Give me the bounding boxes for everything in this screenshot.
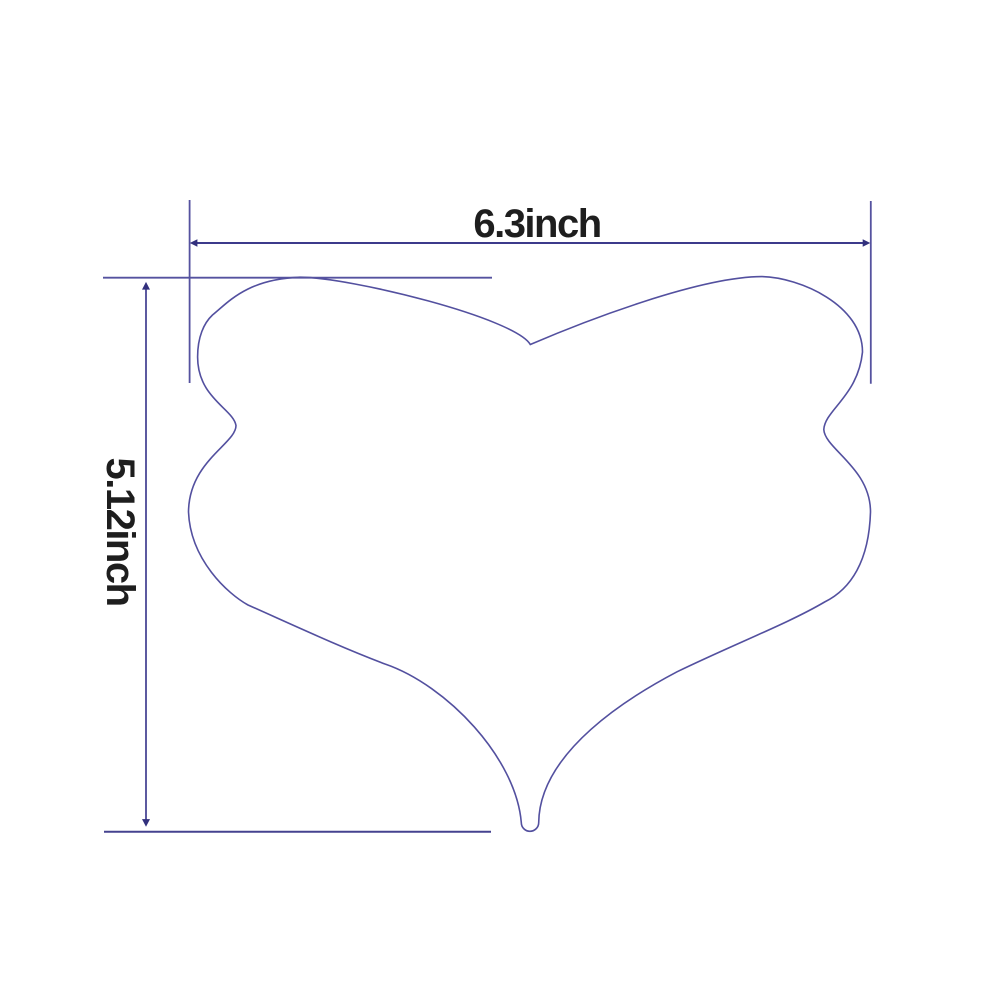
svg-text:6.3inch: 6.3inch bbox=[473, 202, 600, 246]
svg-text:5.12inch: 5.12inch bbox=[98, 457, 142, 605]
